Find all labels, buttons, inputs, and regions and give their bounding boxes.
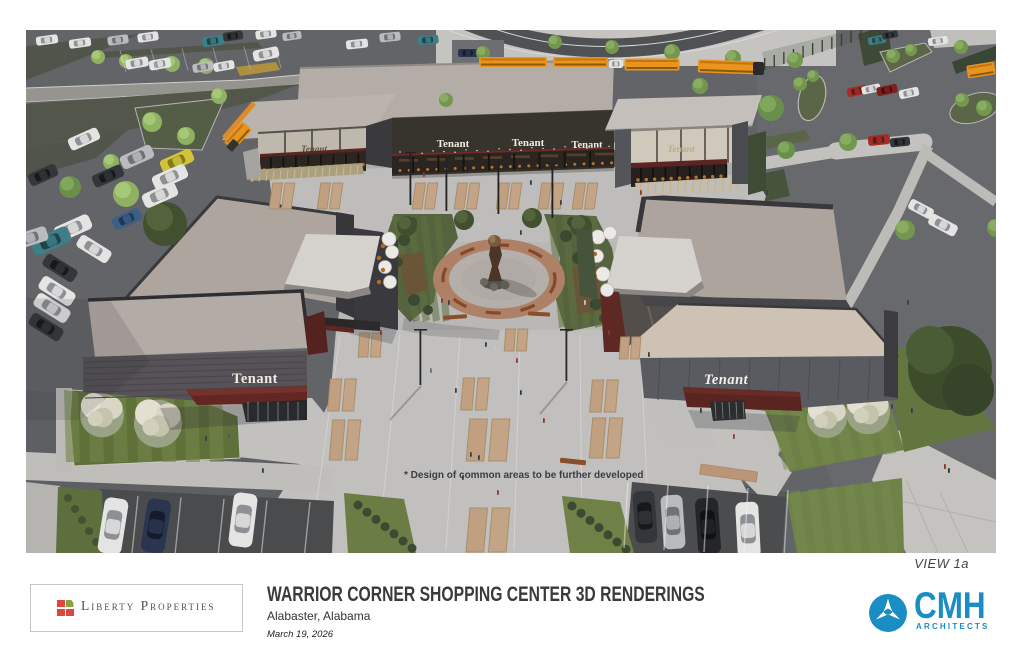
svg-text:* Design of common areas to be: * Design of common areas to be further d… (404, 470, 644, 481)
svg-text:Tenant: Tenant (667, 145, 694, 155)
svg-text:Tenant: Tenant (437, 138, 470, 150)
svg-text:Tenant: Tenant (512, 137, 545, 149)
svg-text:Tenant: Tenant (232, 371, 278, 387)
svg-text:Tenant: Tenant (704, 372, 749, 388)
